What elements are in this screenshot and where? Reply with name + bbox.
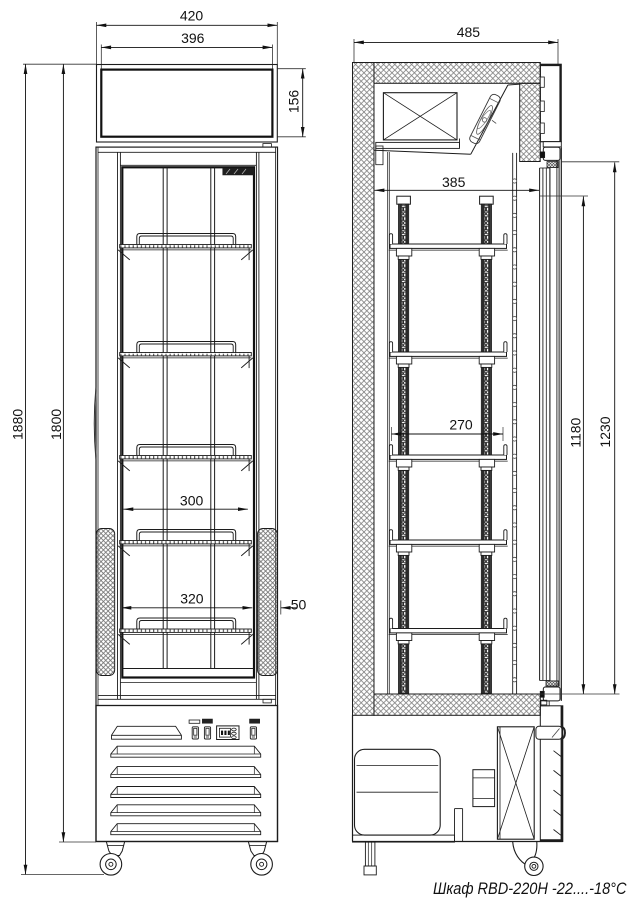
svg-text:300: 300 <box>180 493 204 509</box>
svg-text:50: 50 <box>291 597 307 613</box>
svg-text:1180: 1180 <box>568 417 584 447</box>
svg-text:270: 270 <box>449 417 473 433</box>
svg-text:396: 396 <box>181 30 205 46</box>
svg-text:1230: 1230 <box>597 416 613 447</box>
svg-text:320: 320 <box>180 591 204 607</box>
svg-text:485: 485 <box>457 24 481 40</box>
svg-text:156: 156 <box>285 90 301 114</box>
svg-text:1800: 1800 <box>48 409 64 440</box>
svg-text:1880: 1880 <box>9 409 25 440</box>
svg-text:Шкаф RBD-220H -22....-18°C: Шкаф RBD-220H -22....-18°C <box>433 879 627 898</box>
svg-text:420: 420 <box>180 8 204 24</box>
svg-text:385: 385 <box>442 174 466 190</box>
